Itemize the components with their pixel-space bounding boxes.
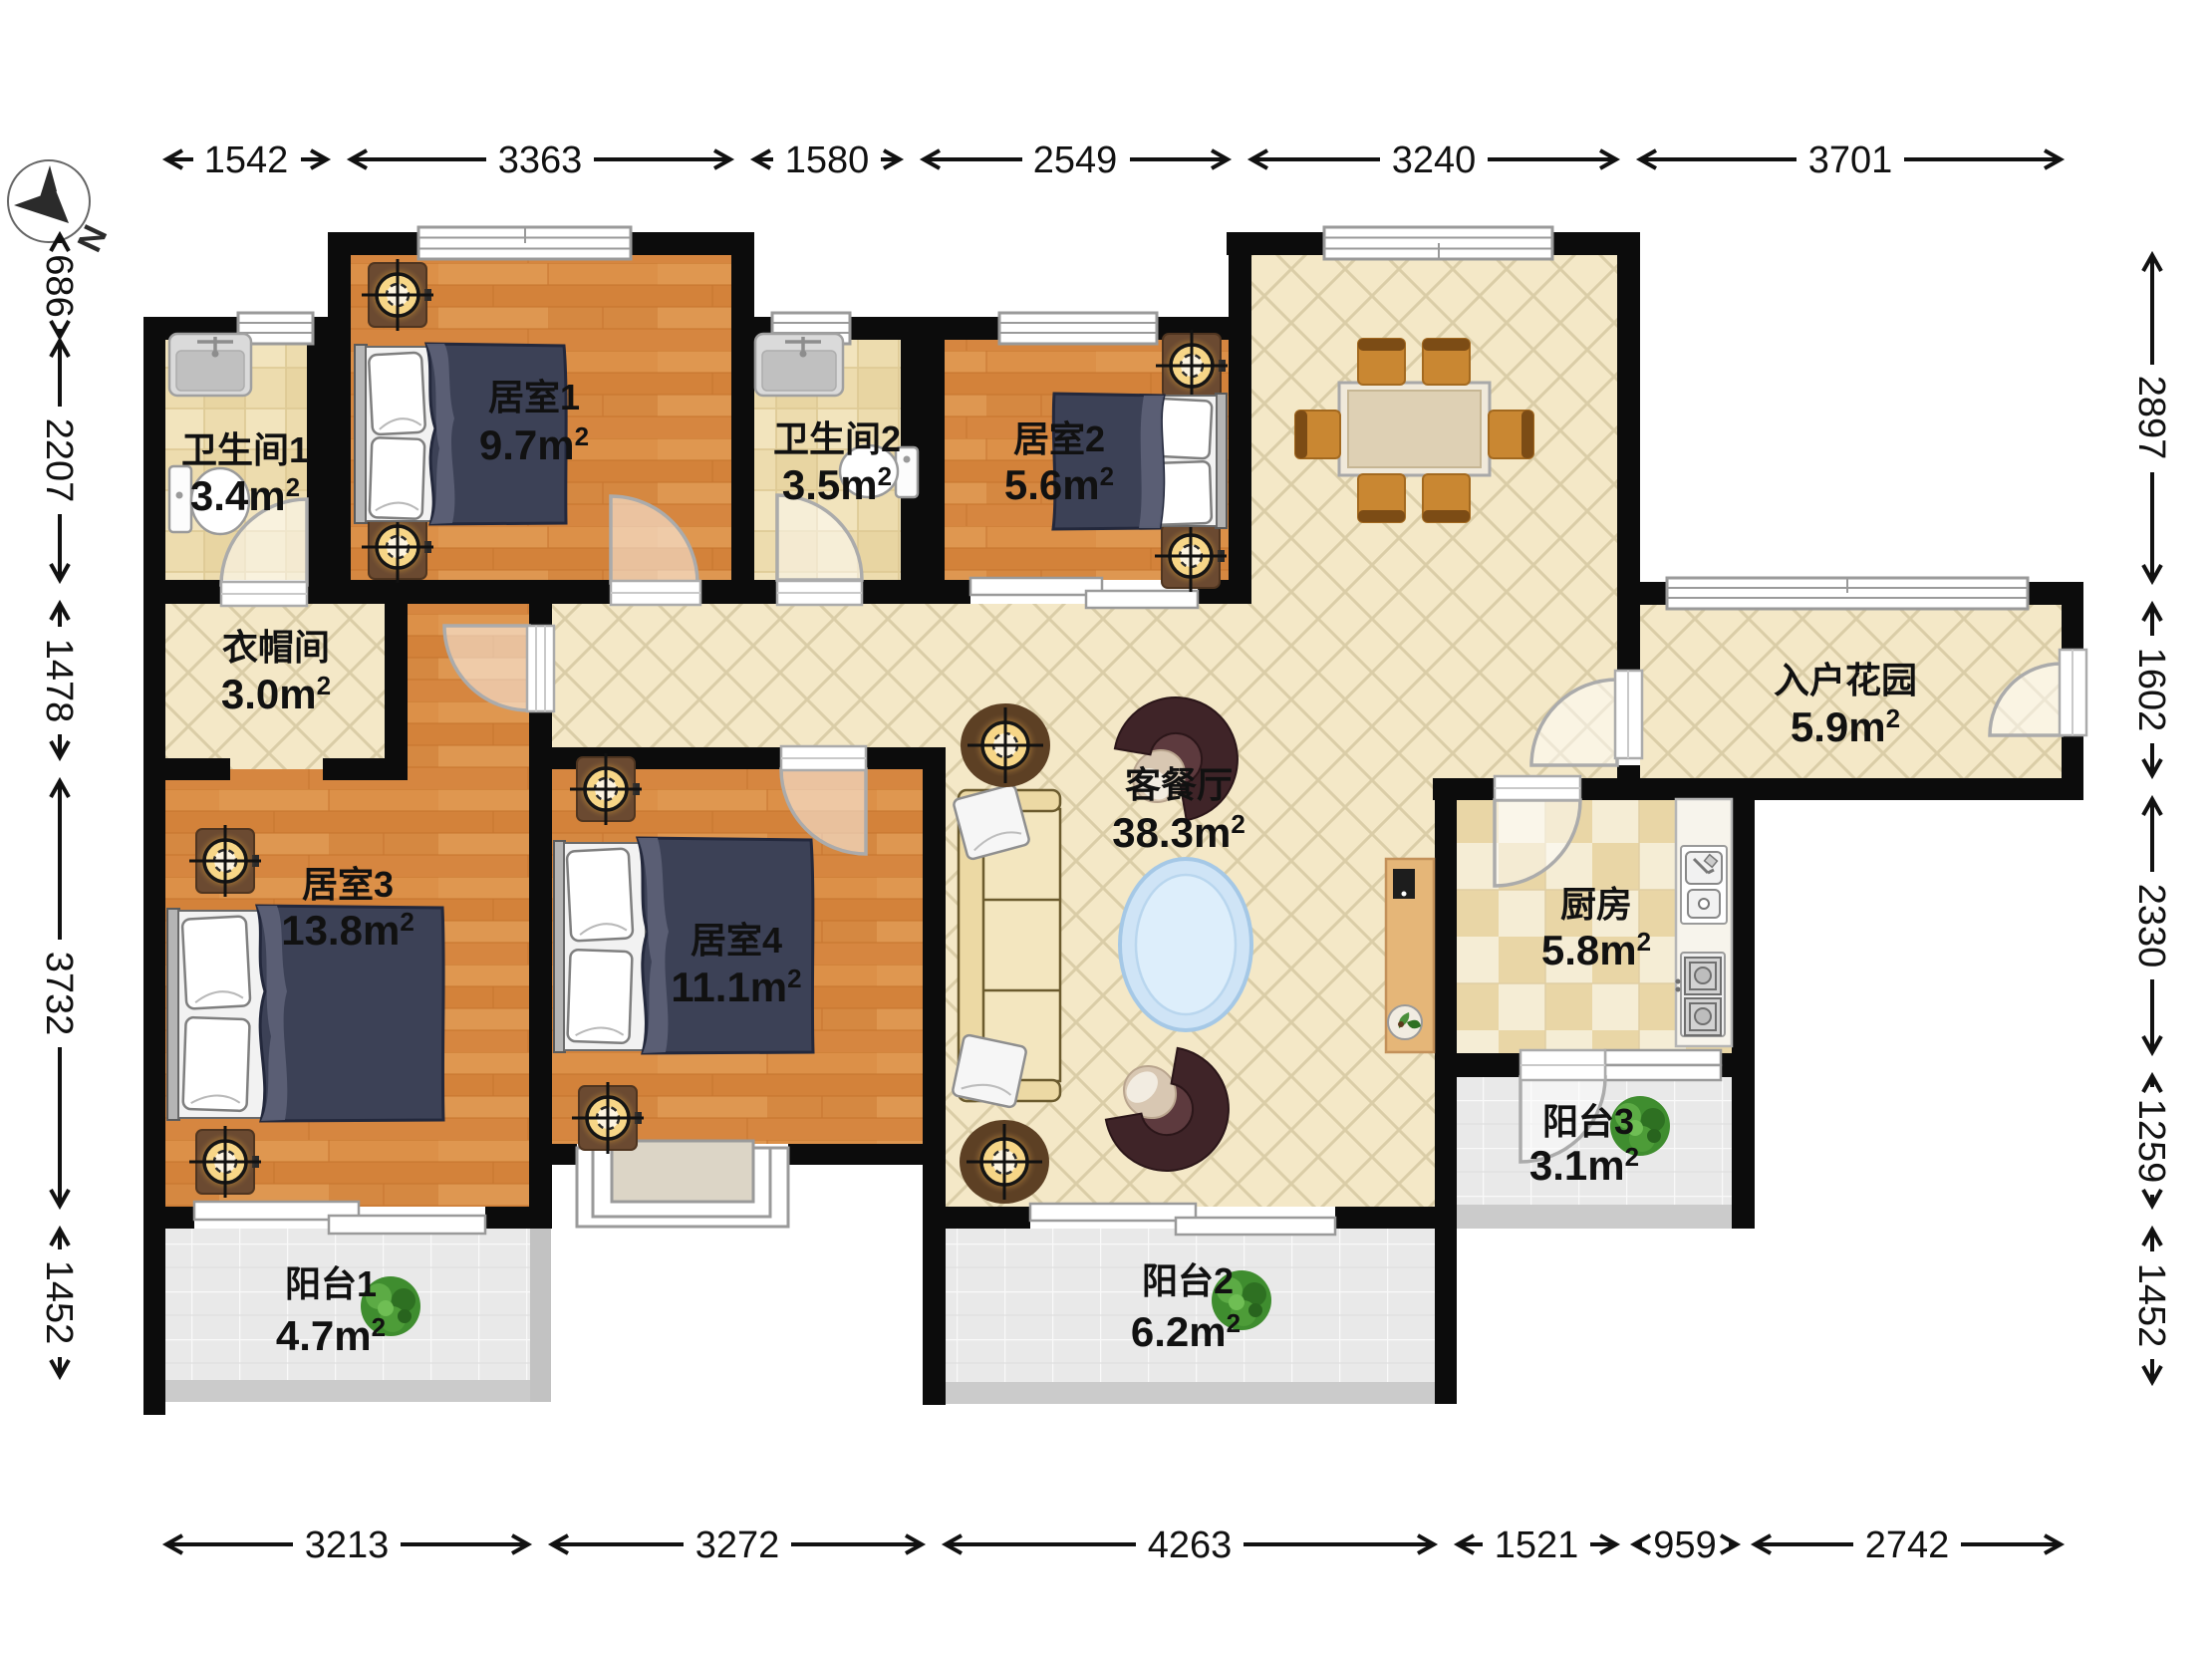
svg-text:1521: 1521 [1495, 1524, 1579, 1566]
svg-text:686: 686 [38, 254, 80, 317]
svg-text:1542: 1542 [204, 139, 289, 181]
svg-text:居室2: 居室2 [1013, 418, 1105, 459]
svg-text:3732: 3732 [38, 952, 80, 1036]
svg-text:居室3: 居室3 [302, 864, 394, 905]
svg-text:3701: 3701 [1808, 139, 1893, 181]
svg-text:959: 959 [1653, 1524, 1716, 1566]
svg-text:1259: 1259 [2130, 1099, 2172, 1184]
svg-text:4.7m2: 4.7m2 [276, 1312, 386, 1359]
svg-text:居室1: 居室1 [488, 377, 580, 417]
svg-text:2742: 2742 [1865, 1524, 1950, 1566]
svg-text:1452: 1452 [2130, 1263, 2172, 1348]
svg-text:1602: 1602 [2130, 648, 2172, 732]
svg-text:1580: 1580 [785, 139, 870, 181]
svg-text:3.4m2: 3.4m2 [190, 472, 300, 519]
svg-text:2897: 2897 [2130, 376, 2172, 460]
svg-text:1452: 1452 [38, 1260, 80, 1345]
svg-text:3.5m2: 3.5m2 [782, 461, 892, 508]
svg-text:3213: 3213 [305, 1524, 390, 1566]
svg-text:阳台3: 阳台3 [1542, 1101, 1634, 1142]
svg-text:阳台1: 阳台1 [285, 1263, 377, 1304]
svg-text:厨房: 厨房 [1560, 884, 1632, 925]
svg-text:阳台2: 阳台2 [1142, 1260, 1234, 1301]
svg-text:客餐厅: 客餐厅 [1125, 764, 1233, 805]
svg-text:6.2m2: 6.2m2 [1131, 1308, 1241, 1355]
svg-text:3272: 3272 [695, 1524, 780, 1566]
svg-text:卫生间2: 卫生间2 [773, 418, 901, 459]
svg-text:3363: 3363 [498, 139, 583, 181]
svg-text:5.9m2: 5.9m2 [1791, 703, 1900, 750]
svg-text:2549: 2549 [1033, 139, 1118, 181]
svg-text:4263: 4263 [1148, 1524, 1233, 1566]
svg-text:卫生间1: 卫生间1 [181, 429, 309, 470]
svg-text:5.6m2: 5.6m2 [1004, 461, 1114, 508]
svg-text:居室4: 居室4 [691, 920, 782, 961]
svg-text:9.7m2: 9.7m2 [479, 421, 589, 468]
svg-text:11.1m2: 11.1m2 [671, 964, 801, 1010]
svg-text:衣帽间: 衣帽间 [222, 627, 330, 668]
svg-text:3.1m2: 3.1m2 [1529, 1142, 1639, 1189]
svg-text:3.0m2: 3.0m2 [221, 671, 331, 717]
svg-text:入户花园: 入户花园 [1774, 660, 1917, 700]
svg-text:2330: 2330 [2130, 884, 2172, 968]
svg-text:1478: 1478 [38, 639, 80, 723]
svg-text:2207: 2207 [38, 418, 80, 503]
svg-text:5.8m2: 5.8m2 [1541, 927, 1651, 973]
svg-text:38.3m2: 38.3m2 [1112, 809, 1245, 856]
svg-text:3240: 3240 [1392, 139, 1477, 181]
svg-text:13.8m2: 13.8m2 [281, 907, 415, 954]
